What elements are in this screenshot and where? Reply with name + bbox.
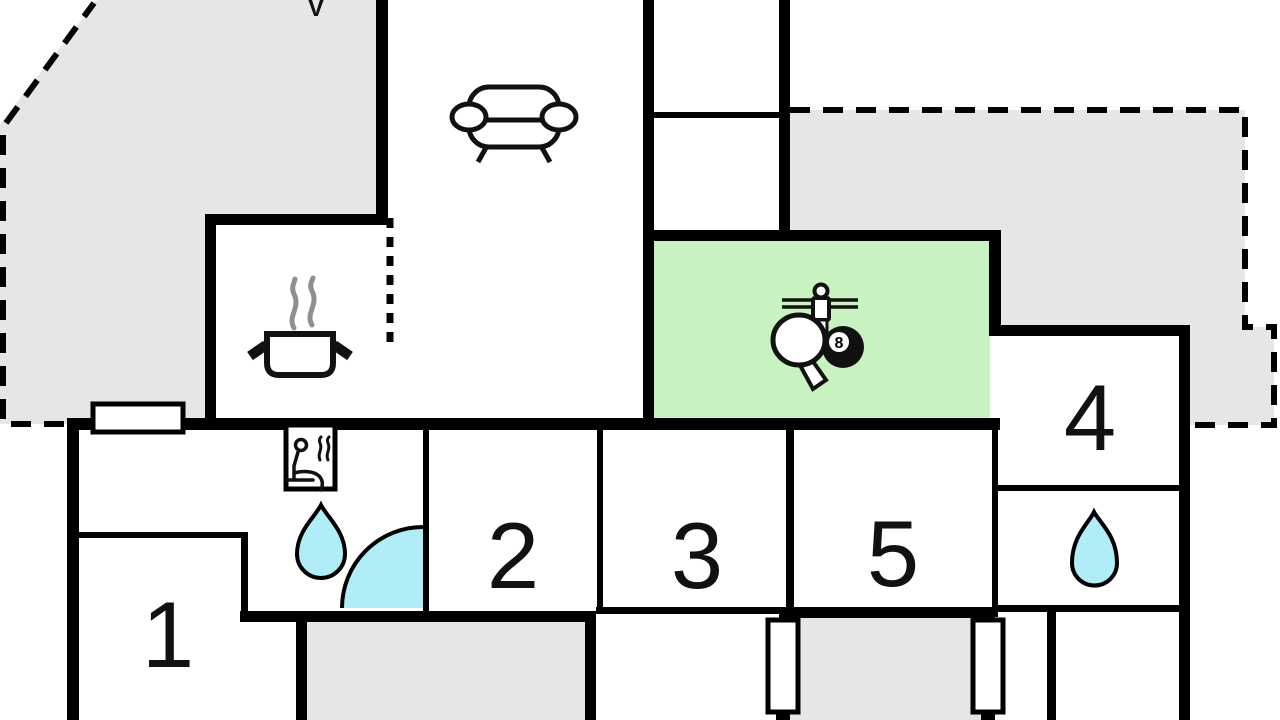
- svg-text:8: 8: [835, 335, 844, 352]
- eight-ball-icon: 8: [822, 326, 864, 368]
- floor-plan-canvas: 8 V 1 2 3 4 5: [0, 0, 1280, 720]
- room-number-label-4: 4: [1064, 365, 1116, 470]
- room-number-label-2: 2: [487, 503, 539, 608]
- cooking-pot-icon: [250, 278, 350, 375]
- room-number-label-5: 5: [867, 501, 919, 606]
- sofa-icon: [452, 87, 576, 162]
- north-mark: V: [308, 0, 325, 22]
- terrace-bottom-right: [784, 613, 990, 720]
- floor-plan: 8 V 1 2 3 4 5: [0, 0, 1280, 720]
- water-drop-icon: [1072, 512, 1117, 586]
- door-marker-left: [768, 620, 798, 712]
- door-marker-right: [973, 620, 1003, 712]
- window-marker: [93, 404, 183, 432]
- water-drop-icon: [297, 505, 345, 578]
- room-number-label-3: 3: [671, 503, 723, 608]
- room-number-label-1: 1: [142, 582, 194, 687]
- terrace-bottom-center: [302, 613, 590, 720]
